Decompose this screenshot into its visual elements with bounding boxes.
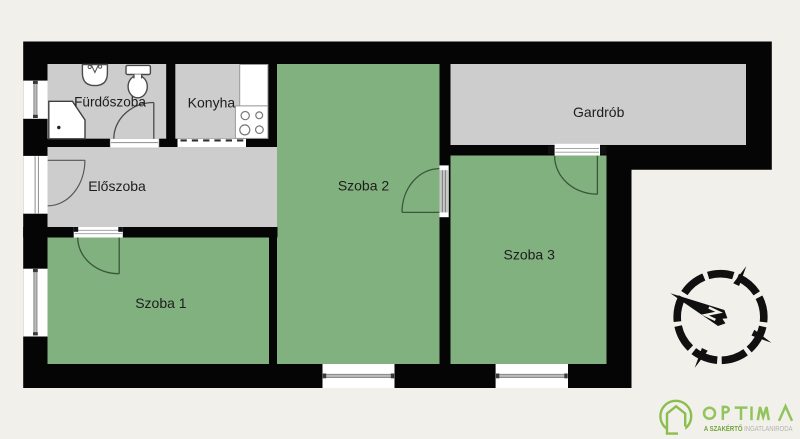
svg-text:Gardrób: Gardrób (573, 104, 625, 120)
svg-text:Konyha: Konyha (188, 94, 236, 110)
svg-text:A SZAKÉRTŐ INGATLANIRODA: A SZAKÉRTŐ INGATLANIRODA (704, 424, 793, 433)
svg-text:Szoba 1: Szoba 1 (135, 295, 187, 311)
svg-text:Fürdőszoba: Fürdőszoba (74, 94, 146, 109)
svg-text:Szoba 3: Szoba 3 (504, 247, 556, 263)
svg-text:Szoba 2: Szoba 2 (338, 177, 390, 193)
svg-text:Előszoba: Előszoba (88, 178, 146, 194)
